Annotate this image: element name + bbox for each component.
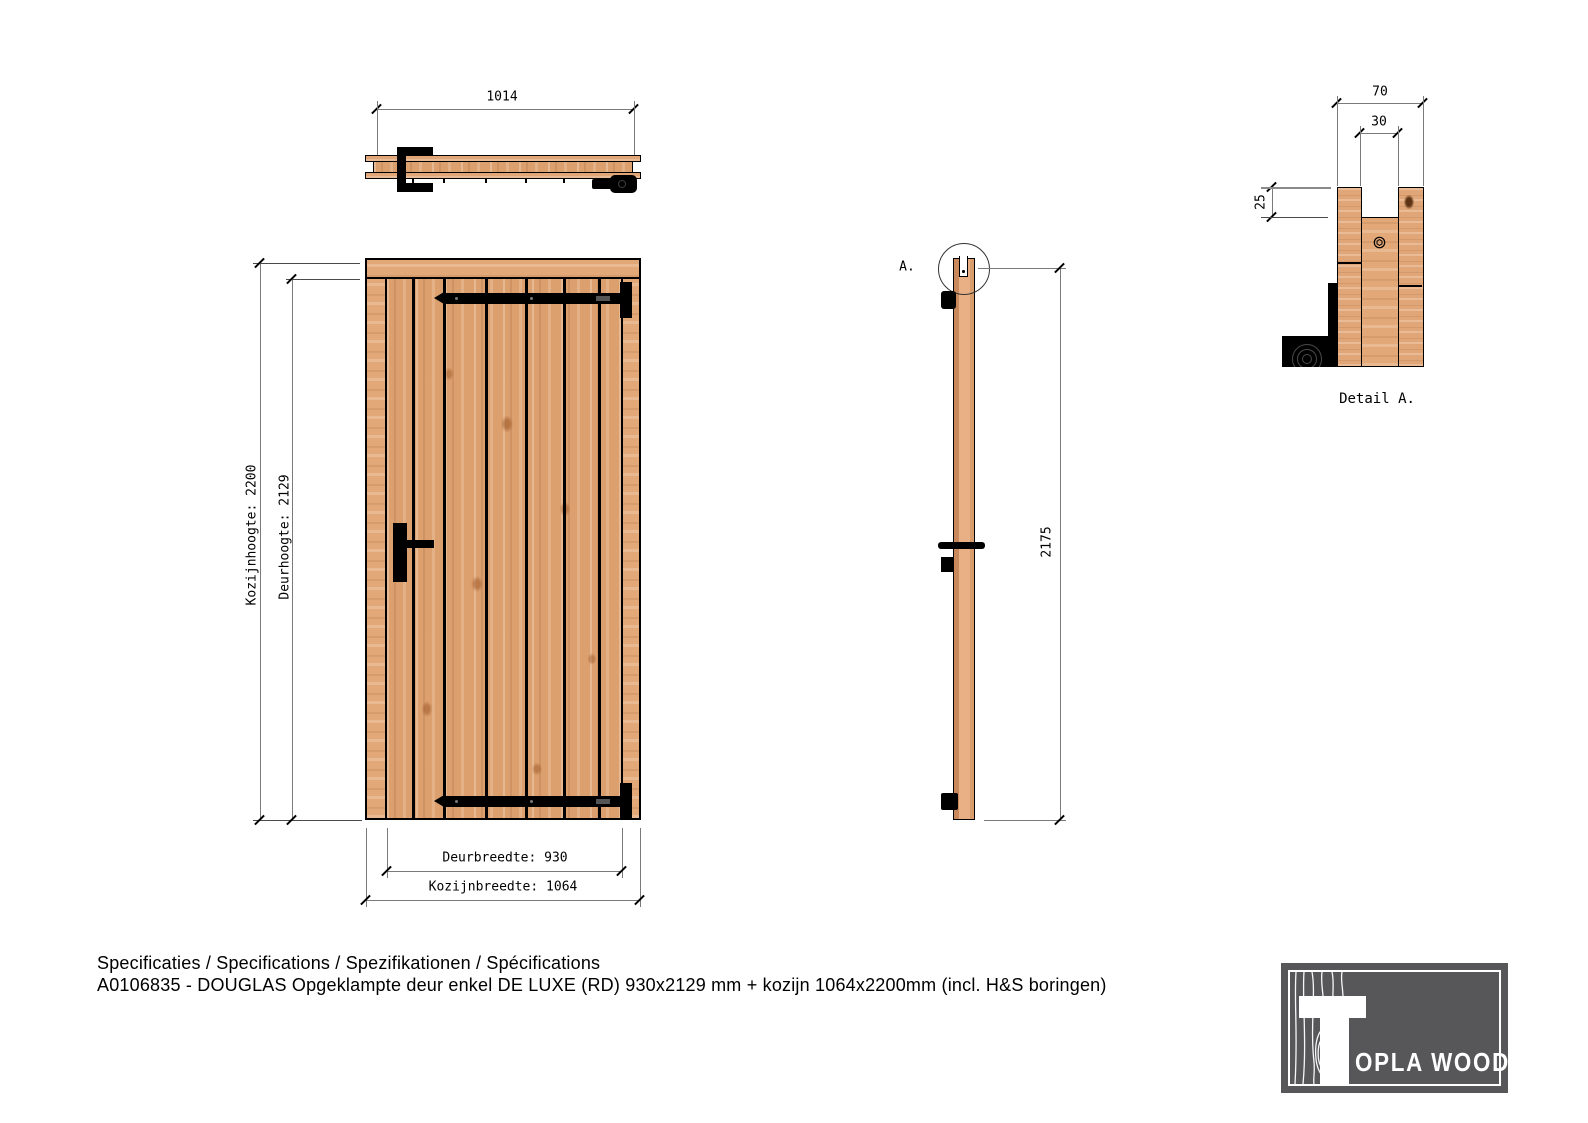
detail-right-board xyxy=(1398,187,1424,367)
plank-joint-mark xyxy=(525,179,527,183)
bracket-arc xyxy=(1302,354,1312,364)
bottom-strap-hinge-tip xyxy=(434,795,444,807)
detail-left-board xyxy=(1337,187,1362,367)
drawing-sheet: 1014 xyxy=(0,0,1588,1123)
detail-left-board-joint xyxy=(1338,262,1361,264)
logo-brand-text: OPLA WOOD xyxy=(1355,1047,1510,1078)
hinge-bolt xyxy=(596,799,610,804)
reference-line xyxy=(984,820,1066,821)
detail-groove-width-label: 30 xyxy=(1371,115,1387,130)
extension-line xyxy=(634,101,635,156)
detail-knot xyxy=(1404,195,1414,209)
screw-icon xyxy=(1372,235,1387,250)
hinge-bolt xyxy=(530,800,533,803)
frame-right-stile-joint xyxy=(621,279,623,818)
extension-line xyxy=(366,828,367,907)
side-handle-bar xyxy=(938,542,985,549)
door-width-label: Deurbreedte: 930 xyxy=(442,851,567,866)
logo-t-letter: T xyxy=(1281,963,1282,964)
extension-line xyxy=(1360,126,1361,186)
hinge-bolt xyxy=(530,297,533,300)
hinge-bracket-top-view xyxy=(397,183,433,192)
dim-line xyxy=(387,871,622,872)
plank-seam xyxy=(412,279,415,818)
extension-line xyxy=(1423,96,1424,186)
reference-line xyxy=(978,268,1066,269)
side-height-label: 2175 xyxy=(1040,526,1055,557)
plank-joint-mark xyxy=(563,179,565,183)
detail-bracket xyxy=(1282,336,1338,367)
detail-caption: Detail A. xyxy=(1339,391,1415,407)
dim-line xyxy=(260,263,261,820)
dim-line xyxy=(1060,268,1061,820)
detail-right-board-joint xyxy=(1399,285,1422,287)
lock-top-view xyxy=(592,179,612,189)
top-width-dim-label: 1014 xyxy=(486,90,517,105)
dim-line xyxy=(1337,103,1423,104)
top-hinge-plate xyxy=(620,282,632,318)
door-leaf xyxy=(387,279,621,818)
reference-line xyxy=(286,279,360,280)
frame-height-label: Kozijnhoogte: 2200 xyxy=(245,465,260,606)
frame-bottom-board xyxy=(365,172,641,179)
detail-rebate-depth-label: 25 xyxy=(1254,194,1269,210)
plank-seam xyxy=(563,279,566,818)
plank-joint-mark xyxy=(485,179,487,183)
reference-line xyxy=(1261,187,1331,189)
hinge-bolt xyxy=(455,800,458,803)
hinge-bolt xyxy=(596,296,610,301)
side-profile xyxy=(953,258,975,820)
plank-seam xyxy=(485,279,488,818)
reference-line xyxy=(253,820,362,821)
bottom-hinge-plate xyxy=(620,783,632,818)
detail-marker-label: A. xyxy=(899,260,915,275)
extension-line xyxy=(1337,96,1338,186)
top-strap-hinge-tip xyxy=(434,292,444,304)
extension-line xyxy=(1398,126,1399,186)
detail-callout-circle xyxy=(938,243,990,295)
door-height-label: Deurhoogte: 2129 xyxy=(278,474,293,599)
dim-line xyxy=(1360,133,1398,134)
door-handle-lever xyxy=(407,540,434,548)
dim-line xyxy=(366,900,640,901)
reference-line xyxy=(1261,217,1328,218)
door-handle xyxy=(393,523,407,582)
plank-seam xyxy=(598,279,601,818)
plank-joint-mark xyxy=(443,179,445,183)
plank-seam xyxy=(443,279,446,818)
brand-logo: T OPLA WOOD xyxy=(1281,963,1508,1093)
reference-line xyxy=(253,263,360,264)
detail-outer-width-label: 70 xyxy=(1372,85,1388,100)
spec-heading: Specificaties / Specifications / Spezifi… xyxy=(97,953,600,974)
hinge-bolt xyxy=(455,297,458,300)
side-lock-body xyxy=(941,557,954,572)
side-bottom-hinge xyxy=(941,793,958,810)
spec-article-line: A0106835 - DOUGLAS Opgeklampte deur enke… xyxy=(97,975,1107,996)
logo-t-mark xyxy=(1320,996,1349,1084)
extension-line xyxy=(640,828,641,907)
dim-line xyxy=(377,109,634,110)
extension-line xyxy=(377,101,378,156)
frame-width-label: Kozijnbreedte: 1064 xyxy=(429,880,578,895)
lock-detail xyxy=(618,180,626,188)
side-hinge-knuckle xyxy=(941,291,956,309)
hinge-bracket-top-view xyxy=(397,147,433,156)
plank-seam xyxy=(525,279,528,818)
